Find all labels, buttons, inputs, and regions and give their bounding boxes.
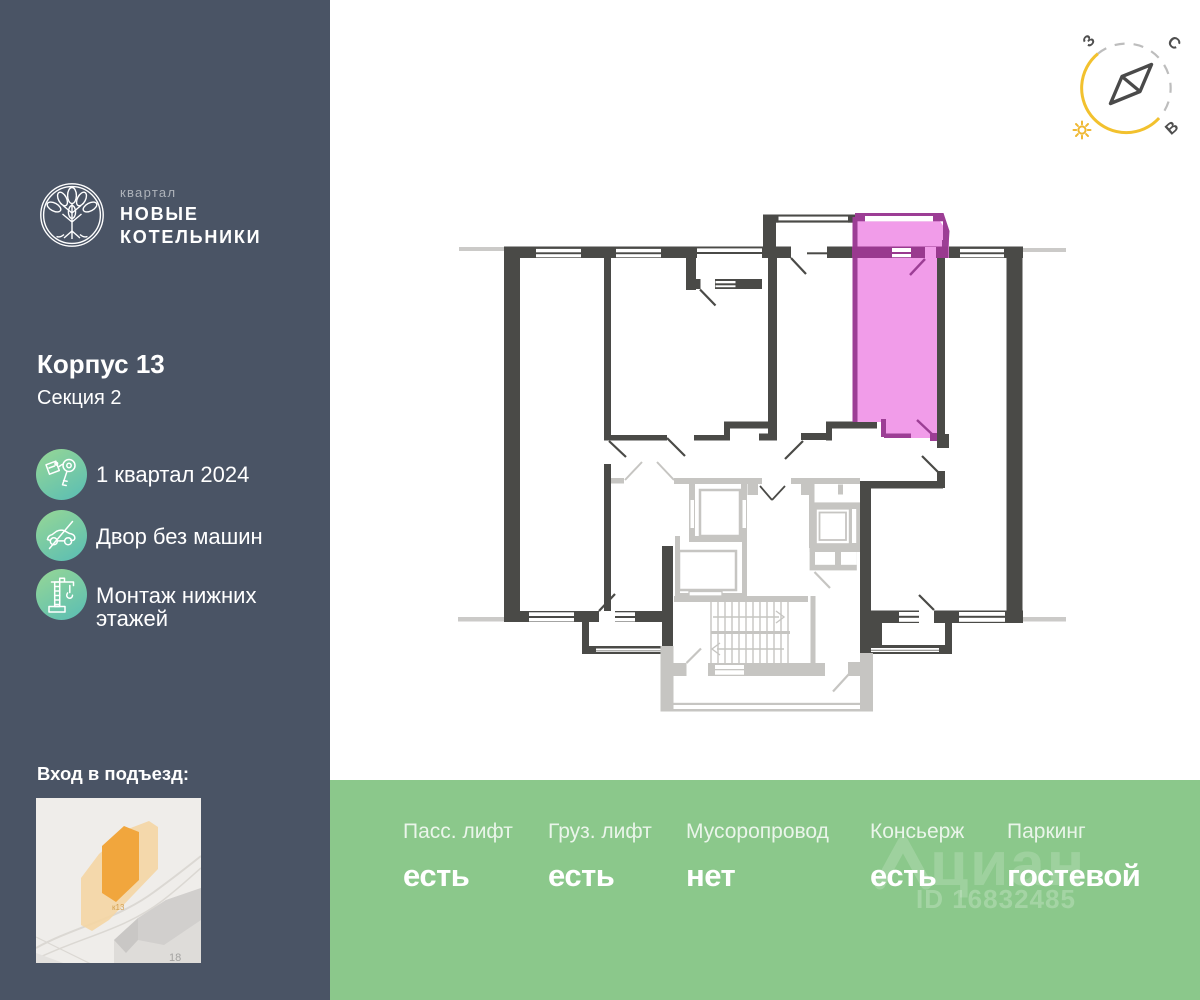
svg-text:З: З <box>1080 32 1099 51</box>
svg-text:С: С <box>1164 33 1184 54</box>
svg-text:В: В <box>1162 118 1182 138</box>
